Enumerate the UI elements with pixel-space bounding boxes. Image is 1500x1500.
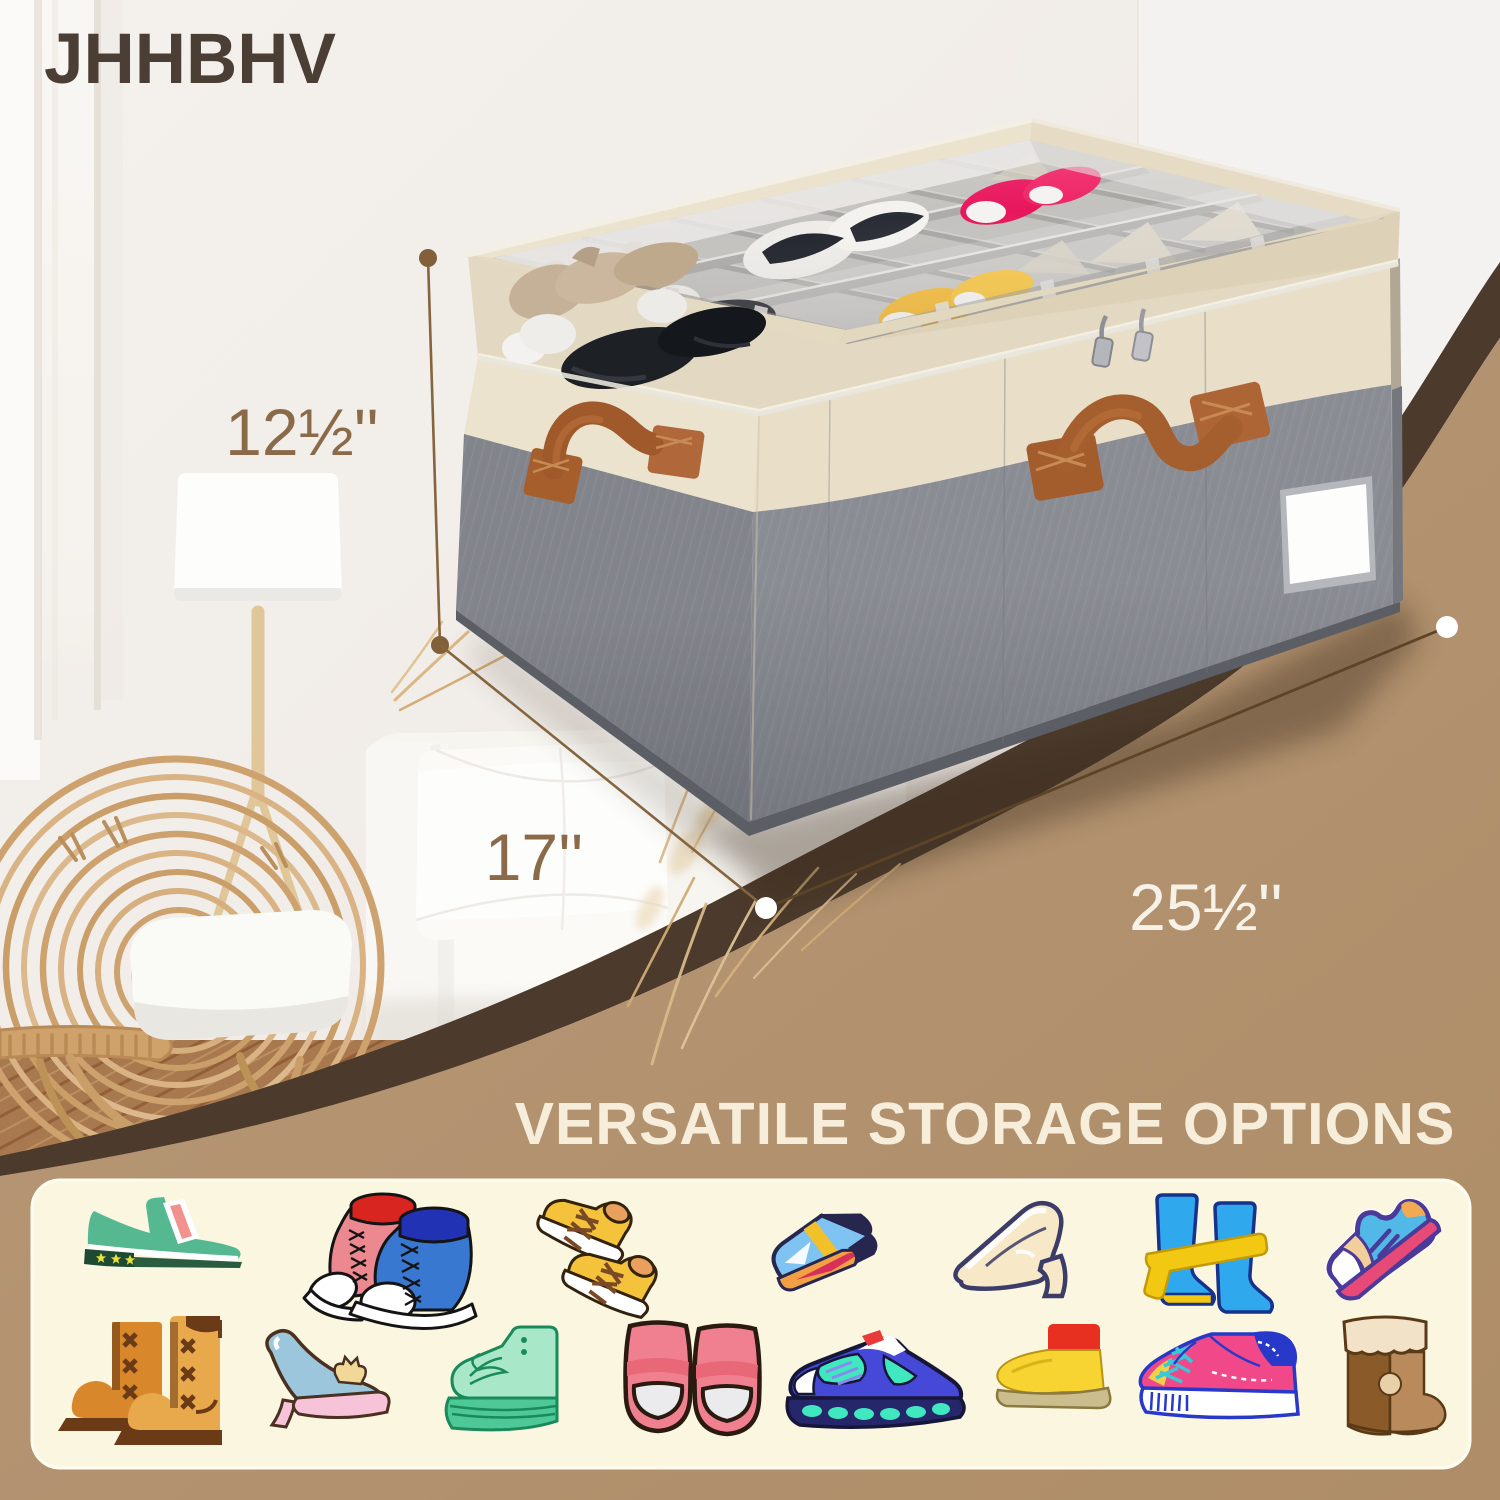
- svg-text:12½'': 12½'': [225, 395, 379, 469]
- svg-text:17'': 17'': [485, 820, 584, 894]
- svg-text:VERSATILE STORAGE OPTIONS: VERSATILE STORAGE OPTIONS: [515, 1091, 1456, 1157]
- svg-text:25½'': 25½'': [1129, 870, 1283, 944]
- svg-text:JHHBHV: JHHBHV: [44, 20, 336, 99]
